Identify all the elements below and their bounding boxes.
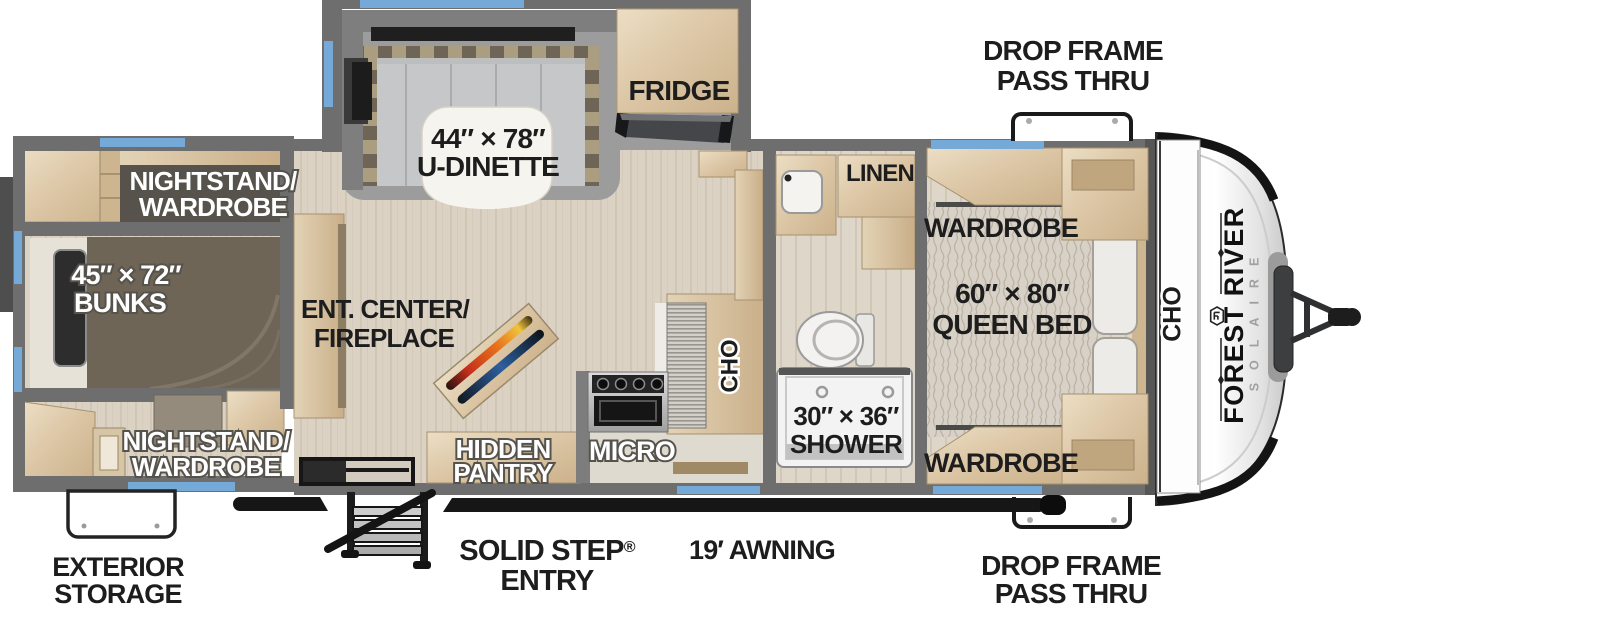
svg-text:PASS THRU: PASS THRU xyxy=(995,578,1148,609)
svg-text:WARDROBE: WARDROBE xyxy=(924,213,1078,243)
svg-text:WARDROBE: WARDROBE xyxy=(139,192,288,222)
svg-text:LINEN: LINEN xyxy=(846,160,914,187)
svg-text:CHO: CHO xyxy=(1159,286,1187,342)
svg-text:DROP FRAME: DROP FRAME xyxy=(983,35,1163,66)
svg-text:DROP FRAME: DROP FRAME xyxy=(981,550,1161,581)
svg-text:STORAGE: STORAGE xyxy=(54,579,181,609)
svg-text:WARDROBE: WARDROBE xyxy=(132,452,281,482)
svg-text:PASS THRU: PASS THRU xyxy=(997,65,1150,96)
svg-text:60″ × 80″: 60″ × 80″ xyxy=(955,278,1069,309)
svg-text:FIREPLACE: FIREPLACE xyxy=(314,323,455,353)
svg-text:SOLID STEP®: SOLID STEP® xyxy=(459,535,635,567)
svg-text:SOLAIRE: SOLAIRE xyxy=(1247,245,1261,392)
svg-text:ENTRY: ENTRY xyxy=(500,565,594,597)
svg-text:19′ AWNING: 19′ AWNING xyxy=(689,535,835,565)
svg-text:30″ × 36″: 30″ × 36″ xyxy=(793,401,899,431)
svg-text:44″ × 78″: 44″ × 78″ xyxy=(431,123,545,154)
svg-text:ENT. CENTER/: ENT. CENTER/ xyxy=(301,294,470,324)
svg-text:U-DINETTE: U-DINETTE xyxy=(417,151,559,182)
svg-text:BUNKS: BUNKS xyxy=(74,288,166,318)
svg-text:PANTRY: PANTRY xyxy=(453,458,553,488)
svg-text:CHO: CHO xyxy=(716,339,743,392)
svg-text:45″ × 72″: 45″ × 72″ xyxy=(71,260,181,290)
svg-text:WARDROBE: WARDROBE xyxy=(924,448,1078,478)
svg-text:MICRO: MICRO xyxy=(589,436,675,466)
svg-text:FRIDGE: FRIDGE xyxy=(629,75,730,106)
svg-text:SHOWER: SHOWER xyxy=(790,429,903,459)
svg-text:QUEEN BED: QUEEN BED xyxy=(932,309,1092,340)
svg-text:EXTERIOR: EXTERIOR xyxy=(52,552,184,582)
